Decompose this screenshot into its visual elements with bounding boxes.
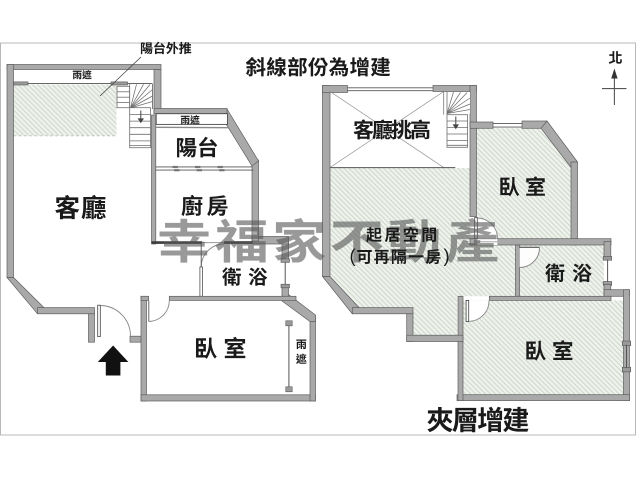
svg-text:(: ( bbox=[350, 245, 357, 266]
svg-text:): ) bbox=[444, 245, 450, 266]
